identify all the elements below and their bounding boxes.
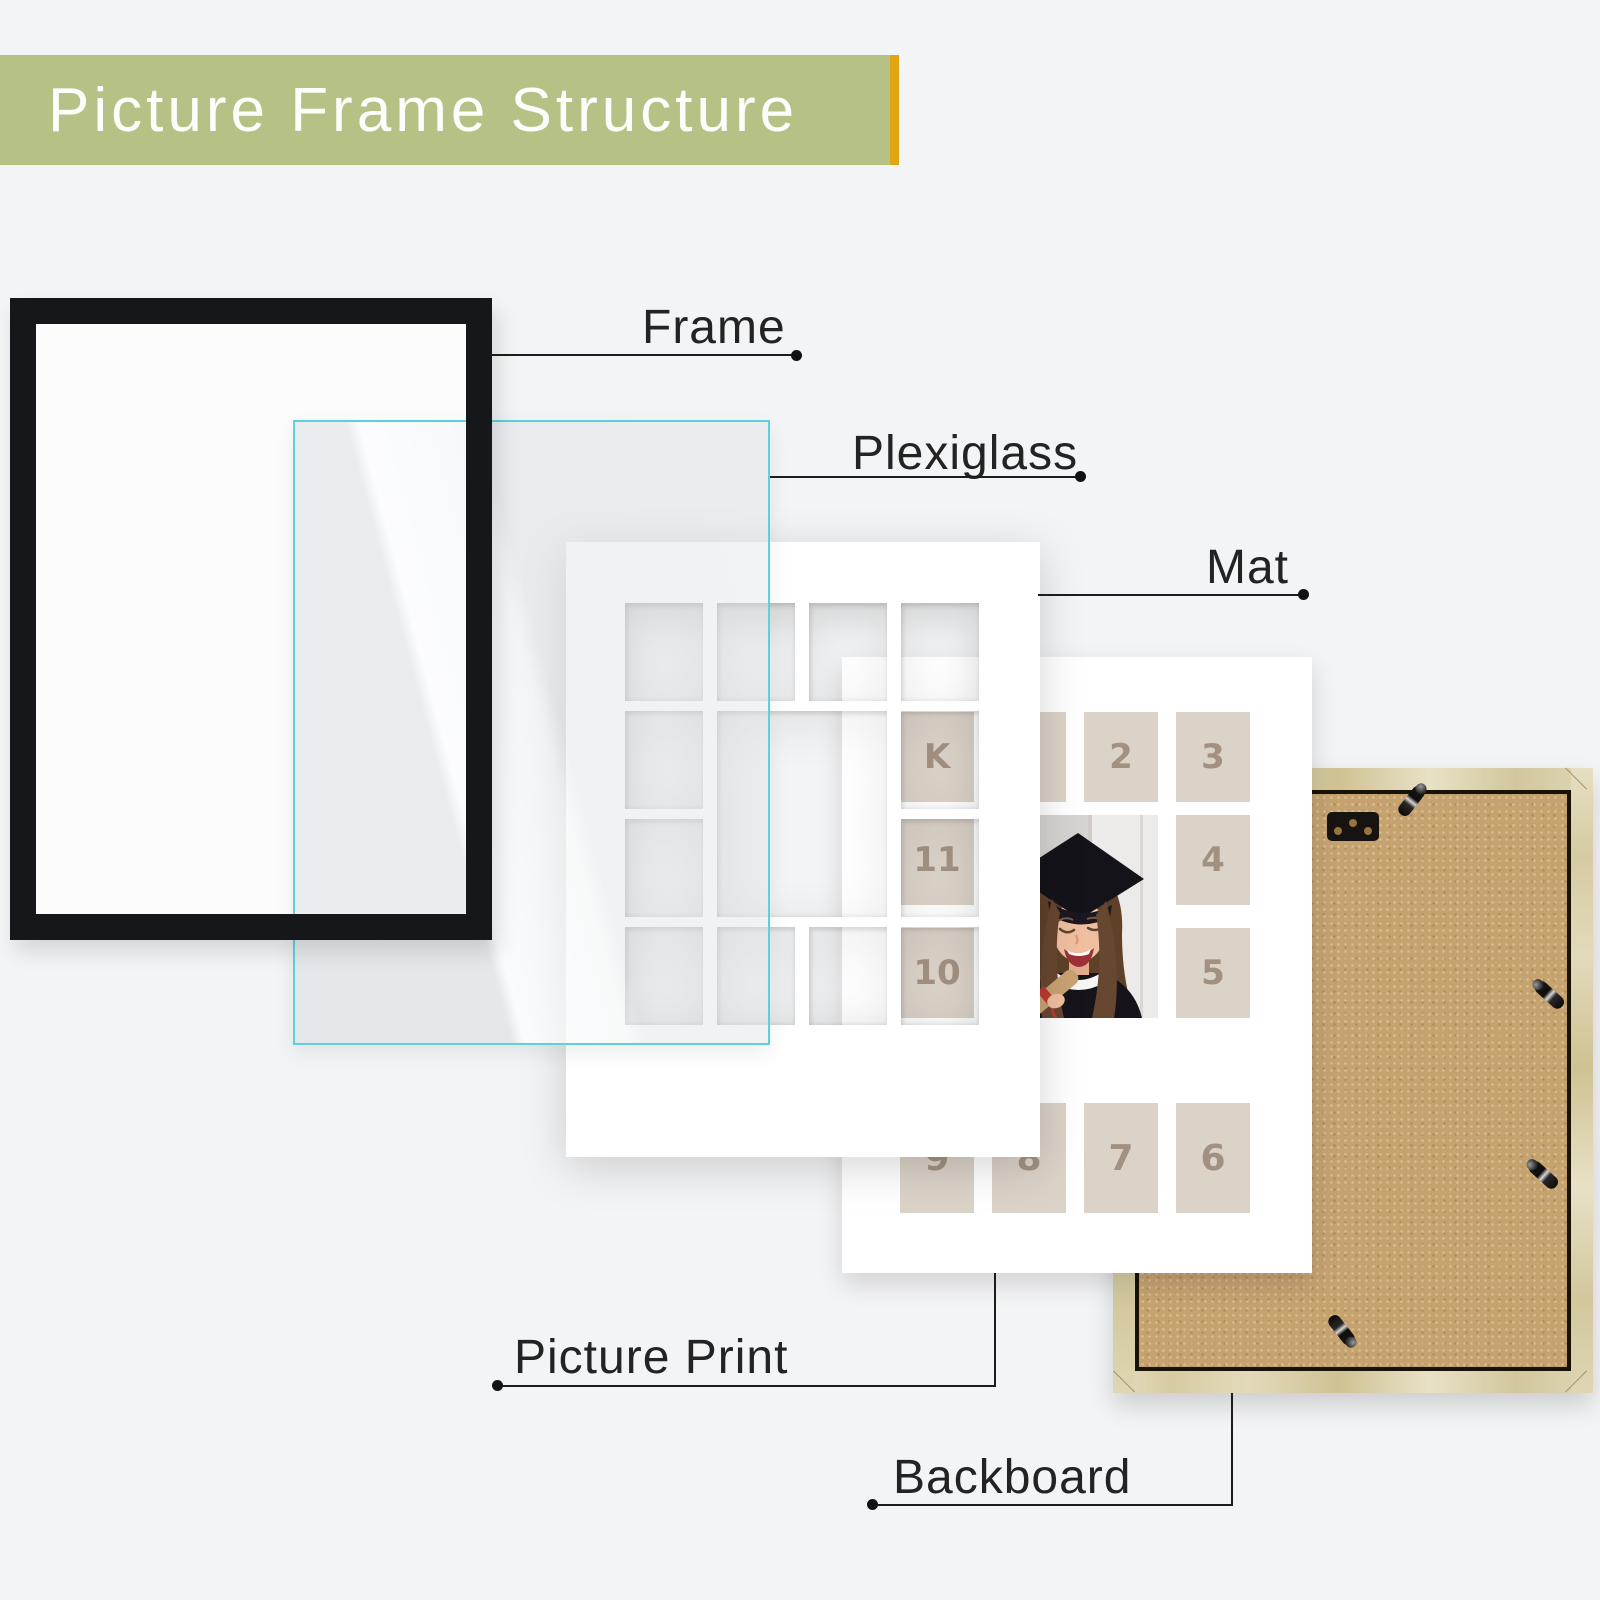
accent-bar: [890, 55, 899, 165]
page-title: Picture Frame Structure: [48, 55, 798, 165]
mat-opening: [809, 927, 887, 1025]
callout-picture-print-dot: [492, 1380, 503, 1391]
callout-backboard-dot: [867, 1499, 878, 1510]
print-cell-label: 2: [1109, 737, 1133, 777]
callout-plexiglass-label: Plexiglass: [852, 426, 1078, 481]
mat-opening: [901, 711, 979, 809]
callout-frame-dot: [791, 350, 802, 361]
title-banner: Picture Frame Structure: [0, 55, 890, 165]
callout-mat-line: [1038, 594, 1304, 596]
callout-frame-label: Frame: [642, 300, 786, 355]
callout-picture-print-label: Picture Print: [514, 1330, 788, 1385]
mat-opening: [901, 819, 979, 917]
mat-opening: [809, 603, 887, 701]
callout-backboard-label: Backboard: [893, 1450, 1131, 1505]
callout-picture-print-line: [498, 1385, 996, 1387]
infographic-canvas: Picture Frame Structure K 1 2 3 11 4 10 …: [0, 0, 1600, 1600]
hanger-plate: [1327, 812, 1379, 841]
print-cell: 7: [1084, 1103, 1158, 1213]
print-cell-label: 4: [1201, 840, 1225, 880]
print-cell: 5: [1176, 928, 1250, 1018]
callout-backboard-line-vertical: [1231, 1393, 1233, 1506]
mat-opening: [901, 927, 979, 1025]
mat-opening: [901, 603, 979, 701]
backboard-wood-right: [1571, 768, 1593, 1393]
print-cell: 6: [1176, 1103, 1250, 1213]
callout-plexiglass-dot: [1075, 471, 1086, 482]
callout-plexiglass-line: [770, 476, 1081, 478]
frame-layer: [10, 298, 492, 940]
callout-picture-print-line-vertical: [994, 1273, 996, 1387]
print-cell-label: 7: [1108, 1138, 1133, 1179]
backboard-wood-bottom: [1113, 1371, 1593, 1393]
print-cell-label: 3: [1201, 737, 1225, 777]
callout-backboard-line: [873, 1504, 1233, 1506]
print-cell: 4: [1176, 815, 1250, 905]
print-cell: 2: [1084, 712, 1158, 802]
print-cell-label: 5: [1201, 953, 1225, 993]
callout-mat-dot: [1298, 589, 1309, 600]
callout-frame-line: [490, 354, 797, 356]
callout-mat-label: Mat: [1206, 540, 1289, 595]
print-cell: 3: [1176, 712, 1250, 802]
print-cell-label: 6: [1200, 1138, 1225, 1179]
